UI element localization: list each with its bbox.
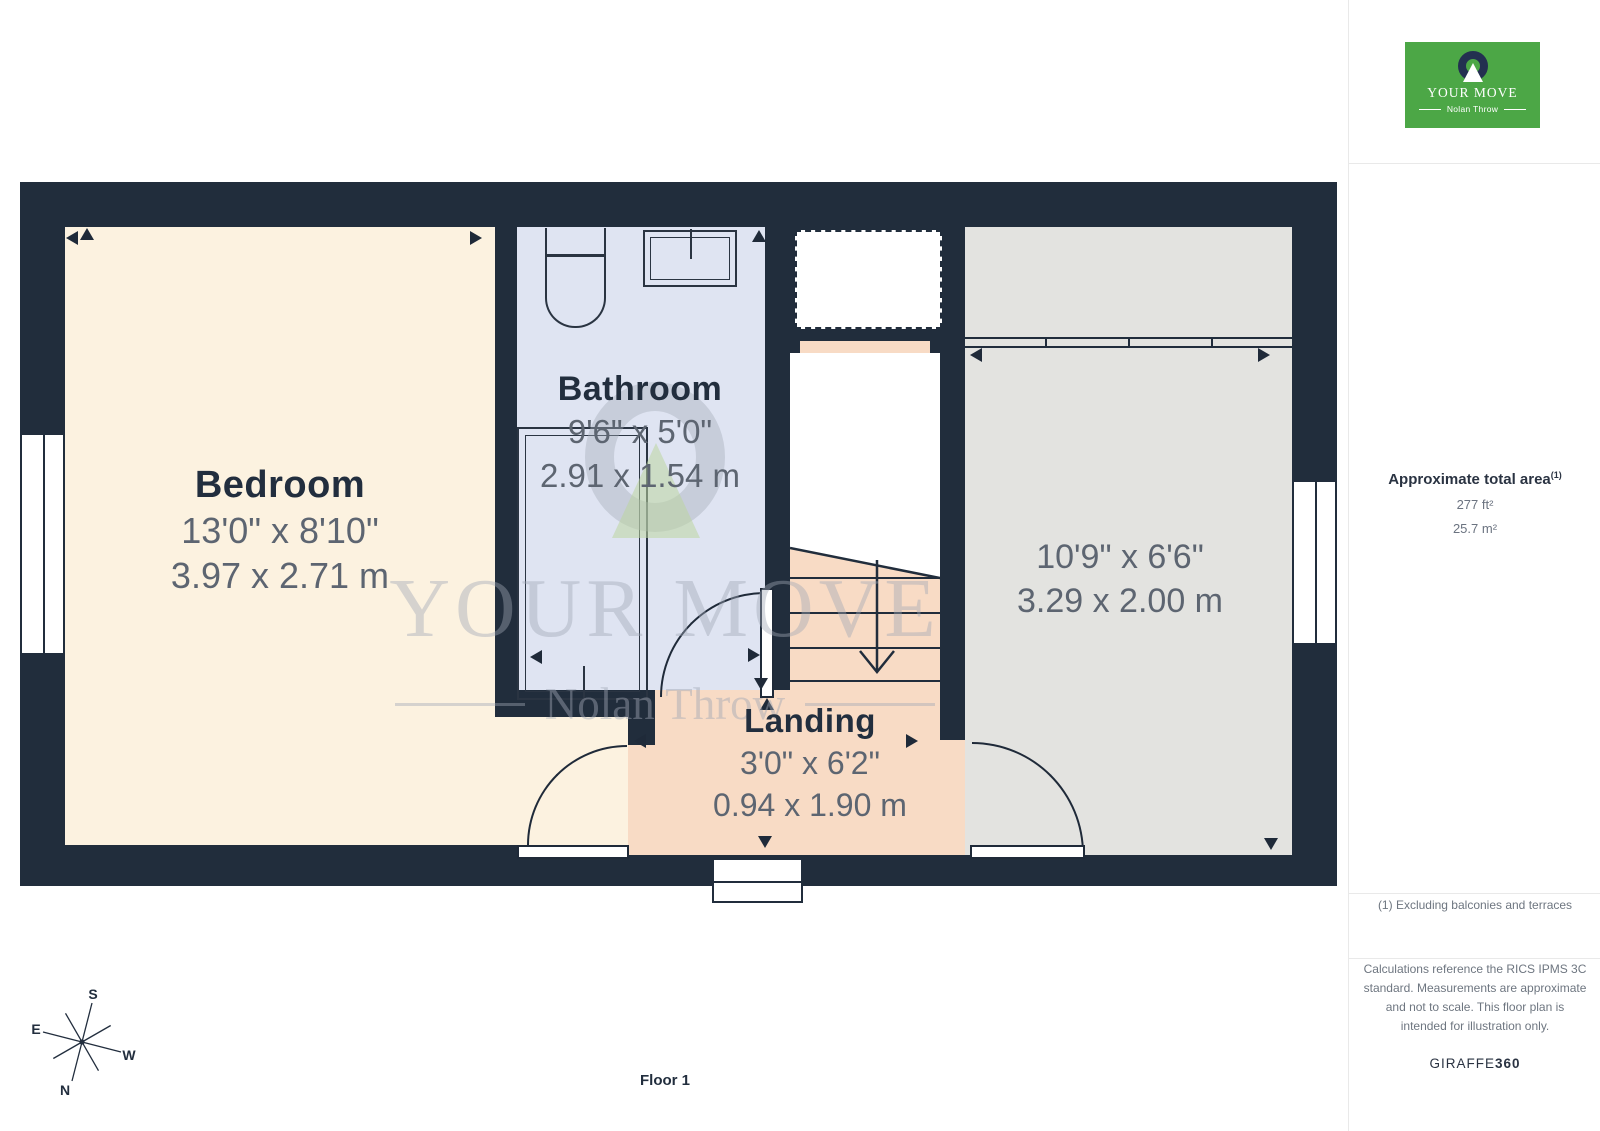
sidebar-divider-1 <box>1349 163 1600 164</box>
right-room-door-leaf <box>970 845 1085 859</box>
measure-arrow-icon <box>748 648 760 662</box>
bathroom-name: Bathroom <box>490 368 790 410</box>
total-area-ft: 277 ft² <box>1355 497 1595 512</box>
measure-arrow-icon <box>470 231 482 245</box>
landing-label: Landing 3'0" x 6'2" 0.94 x 1.90 m <box>660 700 960 826</box>
measure-arrow-icon <box>530 650 542 664</box>
bathroom-label: Bathroom 9'6" x 5'0" 2.91 x 1.54 m <box>490 368 790 498</box>
sink-icon <box>643 230 737 287</box>
measure-arrow-icon <box>1264 838 1278 850</box>
bedroom-label: Bedroom 13'0" x 8'10" 3.97 x 2.71 m <box>80 462 480 598</box>
compass-west-label: W <box>122 1047 136 1063</box>
floor-label: Floor 1 <box>565 1072 765 1089</box>
agency-logo-subtitle: Nolan Throw <box>1447 104 1498 114</box>
landing-dims-imperial: 3'0" x 6'2" <box>660 742 960 784</box>
total-area-m: 25.7 m² <box>1355 521 1595 536</box>
agency-logo-subtitle-row: Nolan Throw <box>1405 104 1540 114</box>
landing-name: Landing <box>660 700 960 742</box>
floorplan-page: YOUR MOVE Nolan Throw Bedroom 13'0" x 8'… <box>0 0 1600 1131</box>
measure-arrow-icon <box>754 678 768 690</box>
window-left <box>20 433 65 655</box>
window-right <box>1292 480 1337 645</box>
compass-south-label: S <box>88 986 97 1002</box>
area-footnote: (1) Excluding balconies and terraces <box>1355 898 1595 912</box>
sidebar-divider-vertical <box>1348 0 1349 1131</box>
unnamed-room-dims-imperial: 10'9" x 6'6" <box>960 535 1280 579</box>
stairwell-void-dashed <box>795 230 942 329</box>
measure-arrow-icon <box>758 836 772 848</box>
measure-arrow-icon <box>66 231 78 245</box>
measure-arrow-icon <box>970 348 982 362</box>
agency-logo-name: YOUR MOVE <box>1405 85 1540 100</box>
provider-name-bold: 360 <box>1495 1056 1521 1071</box>
unnamed-room-label: 10'9" x 6'6" 3.29 x 2.00 m <box>960 535 1280 623</box>
window-bottom <box>712 858 803 903</box>
bedroom-dims-imperial: 13'0" x 8'10" <box>80 508 480 553</box>
total-area-superscript: (1) <box>1551 470 1562 480</box>
provider-brand: GIRAFFE360 <box>1355 1056 1595 1071</box>
staircase <box>790 340 940 690</box>
unnamed-room-dims-metric: 3.29 x 2.00 m <box>960 579 1280 623</box>
disclaimer-text: Calculations reference the RICS IPMS 3C … <box>1362 960 1588 1036</box>
bathroom-dims-imperial: 9'6" x 5'0" <box>490 410 790 454</box>
bedroom-door-leaf <box>517 845 629 859</box>
total-area-block: Approximate total area(1) 277 ft² 25.7 m… <box>1355 470 1595 536</box>
wardrobe-divider <box>965 337 1292 348</box>
compass-rose-icon: S E W N <box>25 985 145 1100</box>
sidebar-divider-3 <box>1349 958 1600 959</box>
compass-east-label: E <box>31 1021 40 1037</box>
bedroom-name: Bedroom <box>80 462 480 508</box>
total-area-title: Approximate total area(1) <box>1355 470 1595 488</box>
measure-arrow-icon <box>80 228 94 240</box>
measure-arrow-icon <box>634 734 646 748</box>
measure-arrow-icon <box>1258 348 1270 362</box>
compass-north-label: N <box>60 1082 70 1098</box>
sidebar-divider-2 <box>1349 893 1600 894</box>
bathroom-dims-metric: 2.91 x 1.54 m <box>490 454 790 498</box>
bedroom-dims-metric: 3.97 x 2.71 m <box>80 553 480 598</box>
agency-logo: YOUR MOVE Nolan Throw <box>1405 42 1540 128</box>
measure-arrow-icon <box>752 230 766 242</box>
provider-name: GIRAFFE <box>1429 1056 1495 1071</box>
landing-dims-metric: 0.94 x 1.90 m <box>660 784 960 826</box>
agency-logo-mark-icon <box>1456 51 1490 83</box>
toilet-icon <box>545 228 606 328</box>
